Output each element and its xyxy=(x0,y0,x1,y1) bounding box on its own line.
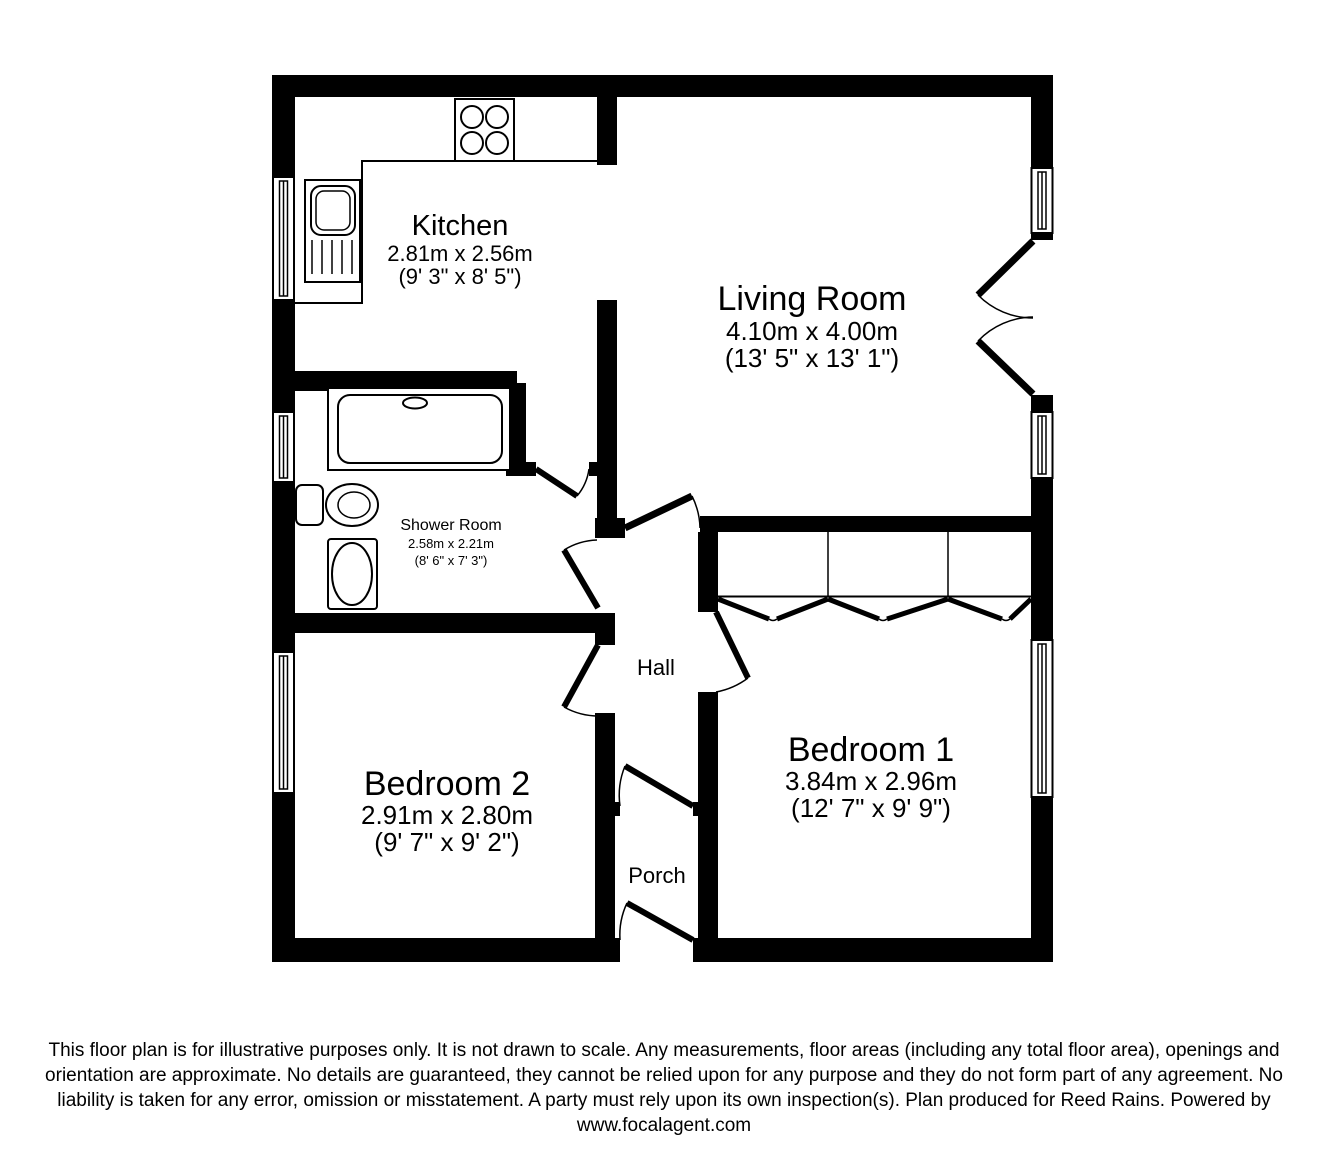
sink-drainer-icon xyxy=(305,180,360,282)
wall-right-2 xyxy=(1031,233,1053,240)
door-hall-porch xyxy=(619,766,693,806)
shower-room-metric: 2.58m x 2.21m xyxy=(408,536,494,551)
disclaimer-line-3: liability is taken for any error, omissi… xyxy=(34,1088,1294,1113)
bedroom-1-name: Bedroom 1 xyxy=(788,731,954,769)
living-room-name: Living Room xyxy=(718,280,907,318)
wall-left-1 xyxy=(272,75,295,177)
bedroom-1-imperial: (12' 7" x 9' 9") xyxy=(791,793,951,823)
door-bedroom-2 xyxy=(564,645,600,716)
living-room-metric: 4.10m x 4.00m xyxy=(726,316,898,346)
wall-right-4 xyxy=(1031,478,1053,640)
wardrobe-bifold-icon xyxy=(718,599,1031,621)
disclaimer-line-4: www.focalagent.com xyxy=(34,1113,1294,1138)
bedroom-2-imperial: (9' 7" x 9' 2") xyxy=(374,827,519,857)
kitchen-imperial: (9' 3" x 8' 5") xyxy=(398,264,521,289)
room-label-porch: Porch xyxy=(628,863,685,888)
bedroom-2-name: Bedroom 2 xyxy=(364,765,530,803)
wash-basin-icon xyxy=(328,539,377,609)
bedroom-1-metric: 3.84m x 2.96m xyxy=(785,766,957,796)
wall-bed2-right-lower xyxy=(595,713,615,938)
toilet-icon xyxy=(296,484,378,526)
room-label-bedroom-1: Bedroom 1 3.84m x 2.96m (12' 7" x 9' 9") xyxy=(785,731,957,823)
window-living-room-bottom xyxy=(1032,412,1053,478)
wall-top xyxy=(272,75,1053,97)
wall-divider-top-stub xyxy=(597,97,617,165)
hall-name: Hall xyxy=(637,655,675,680)
door-kitchen-hall xyxy=(564,540,598,608)
wall-bottom-left xyxy=(272,938,620,962)
hob-icon xyxy=(455,99,514,161)
porch-name: Porch xyxy=(628,863,685,888)
wall-left-4 xyxy=(272,793,295,962)
built-in-wardrobe xyxy=(718,532,1031,621)
door-shower-room xyxy=(536,469,589,496)
window-shower-room xyxy=(273,412,294,482)
living-room-imperial: (13' 5" x 13' 1") xyxy=(725,343,899,373)
wall-hall-bed1-upper xyxy=(698,532,718,612)
kitchen-name: Kitchen xyxy=(412,210,509,242)
wall-hall-bed1-lower xyxy=(698,692,718,938)
window-living-room-top xyxy=(1032,168,1053,233)
wall-bed2-right-upper xyxy=(595,613,615,645)
window-bedroom-1 xyxy=(1032,640,1053,797)
window-kitchen xyxy=(273,177,294,300)
disclaimer-line-1: This floor plan is for illustrative purp… xyxy=(34,1038,1294,1063)
room-label-bedroom-2: Bedroom 2 2.91m x 2.80m (9' 7" x 9' 2") xyxy=(361,765,533,857)
bedroom-2-metric: 2.91m x 2.80m xyxy=(361,800,533,830)
shower-room-fixtures xyxy=(296,388,510,609)
room-label-hall: Hall xyxy=(637,655,675,680)
room-label-shower-room: Shower Room 2.58m x 2.21m (8' 6" x 7' 3"… xyxy=(400,517,501,568)
wall-divider-foot xyxy=(595,518,625,538)
disclaimer-text: This floor plan is for illustrative purp… xyxy=(34,1038,1294,1138)
shower-room-name: Shower Room xyxy=(400,517,501,534)
disclaimer-line-2: orientation are approximate. No details … xyxy=(34,1063,1294,1088)
room-label-kitchen: Kitchen 2.81m x 2.56m (9' 3" x 8' 5") xyxy=(387,210,533,289)
window-bedroom-2 xyxy=(273,652,294,793)
wall-bottom-right xyxy=(693,938,1053,962)
wall-left-2 xyxy=(272,300,295,412)
kitchen-metric: 2.81m x 2.56m xyxy=(387,241,533,266)
wall-right-3 xyxy=(1031,395,1053,412)
floor-plan-page: Kitchen 2.81m x 2.56m (9' 3" x 8' 5") Li… xyxy=(0,0,1328,1151)
door-entrance xyxy=(620,903,693,940)
shower-tray-icon xyxy=(328,388,510,470)
shower-room-imperial: (8' 6" x 7' 3") xyxy=(415,553,488,568)
wall-right-1 xyxy=(1031,97,1053,168)
wall-shower-bed2 xyxy=(272,613,615,633)
door-living-room xyxy=(625,496,700,528)
room-label-living-room: Living Room 4.10m x 4.00m (13' 5" x 13' … xyxy=(718,280,907,373)
wall-right-5 xyxy=(1031,797,1053,938)
wall-divider-main xyxy=(597,300,617,538)
floor-plan: Kitchen 2.81m x 2.56m (9' 3" x 8' 5") Li… xyxy=(0,0,1328,1151)
french-door-living-room xyxy=(978,241,1033,394)
wall-divider-jamb xyxy=(589,462,597,476)
door-bedroom-1 xyxy=(716,612,748,692)
wall-living-hall xyxy=(700,516,1031,532)
